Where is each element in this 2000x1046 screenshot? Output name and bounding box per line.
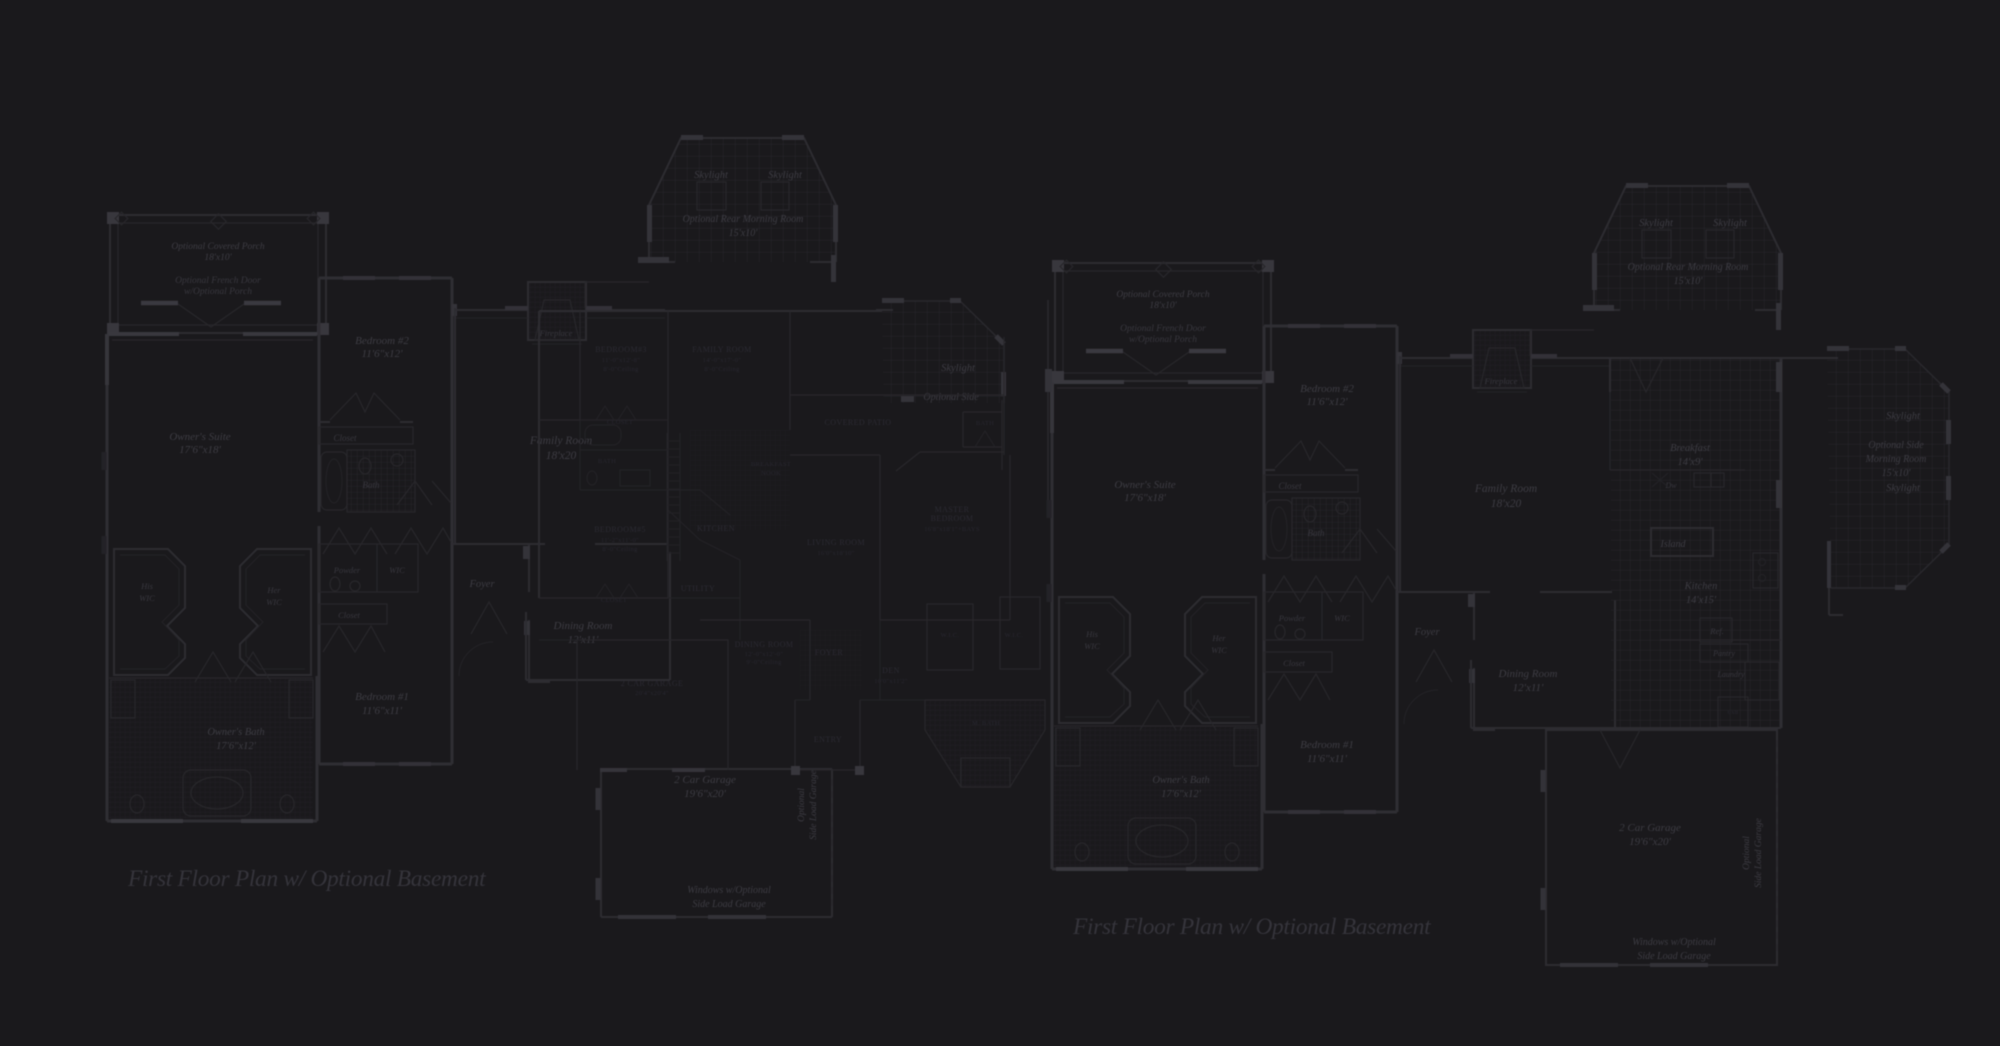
svg-text:ENTRY: ENTRY bbox=[814, 735, 842, 744]
svg-text:8'-0"Ceiling: 8'-0"Ceiling bbox=[602, 546, 638, 553]
svg-text:BEDROOM#3: BEDROOM#3 bbox=[595, 345, 647, 354]
svg-text:12'-0"x12'-0": 12'-0"x12'-0" bbox=[745, 651, 784, 658]
svg-text:UTILITY: UTILITY bbox=[681, 584, 715, 593]
svg-text:19'6"x20': 19'6"x20' bbox=[684, 788, 726, 800]
svg-text:11'-2"x11'-0": 11'-2"x11'-0" bbox=[601, 537, 639, 544]
svg-text:W.I.C.: W.I.C. bbox=[941, 632, 960, 639]
svg-text:CLOSET: CLOSET bbox=[607, 419, 633, 426]
svg-text:11'-0"x12'-8": 11'-0"x12'-8" bbox=[602, 357, 640, 364]
svg-text:16'0"x18'10": 16'0"x18'10" bbox=[817, 550, 854, 557]
svg-text:DEN: DEN bbox=[882, 666, 900, 675]
svg-text:M. BATH: M. BATH bbox=[972, 720, 1000, 727]
svg-text:10'0"x11'2": 10'0"x11'2" bbox=[874, 678, 908, 685]
svg-text:Side Load Garage: Side Load Garage bbox=[692, 899, 766, 910]
svg-text:Windows w/Optional: Windows w/Optional bbox=[687, 885, 771, 896]
svg-text:KITCHEN: KITCHEN bbox=[697, 524, 735, 533]
svg-text:16'8"x18'1"+BAYS: 16'8"x18'1"+BAYS bbox=[924, 526, 980, 533]
svg-text:8'-0"Ceiling: 8'-0"Ceiling bbox=[603, 366, 639, 373]
svg-text:2 CAR GARAGE: 2 CAR GARAGE bbox=[621, 679, 684, 688]
svg-text:DINING ROOM: DINING ROOM bbox=[735, 640, 794, 649]
svg-text:BREAKFAST: BREAKFAST bbox=[751, 461, 791, 468]
svg-text:BEDROOM: BEDROOM bbox=[931, 514, 974, 523]
svg-text:BEDROOM#5: BEDROOM#5 bbox=[594, 525, 646, 534]
svg-text:14'-0"x17'-0": 14'-0"x17'-0" bbox=[703, 357, 742, 364]
svg-text:20'4"x20'4": 20'4"x20'4" bbox=[635, 690, 669, 697]
svg-text:CLOSET: CLOSET bbox=[601, 597, 627, 604]
svg-text:W.I.C.: W.I.C. bbox=[1005, 632, 1024, 639]
svg-text:COVERED PATIO: COVERED PATIO bbox=[825, 418, 892, 427]
svg-text:BATH: BATH bbox=[976, 420, 994, 427]
svg-text:MASTER: MASTER bbox=[935, 505, 970, 514]
svg-text:8'-0"Ceiling: 8'-0"Ceiling bbox=[704, 366, 740, 373]
svg-text:FAMILY ROOM: FAMILY ROOM bbox=[692, 345, 751, 354]
svg-text:LIVING ROOM: LIVING ROOM bbox=[807, 538, 865, 547]
svg-text:NOOK: NOOK bbox=[761, 470, 781, 477]
svg-text:2 Car Garage: 2 Car Garage bbox=[674, 774, 736, 786]
svg-text:BATH: BATH bbox=[598, 458, 616, 465]
svg-text:9'-0"Ceiling: 9'-0"Ceiling bbox=[746, 659, 782, 666]
